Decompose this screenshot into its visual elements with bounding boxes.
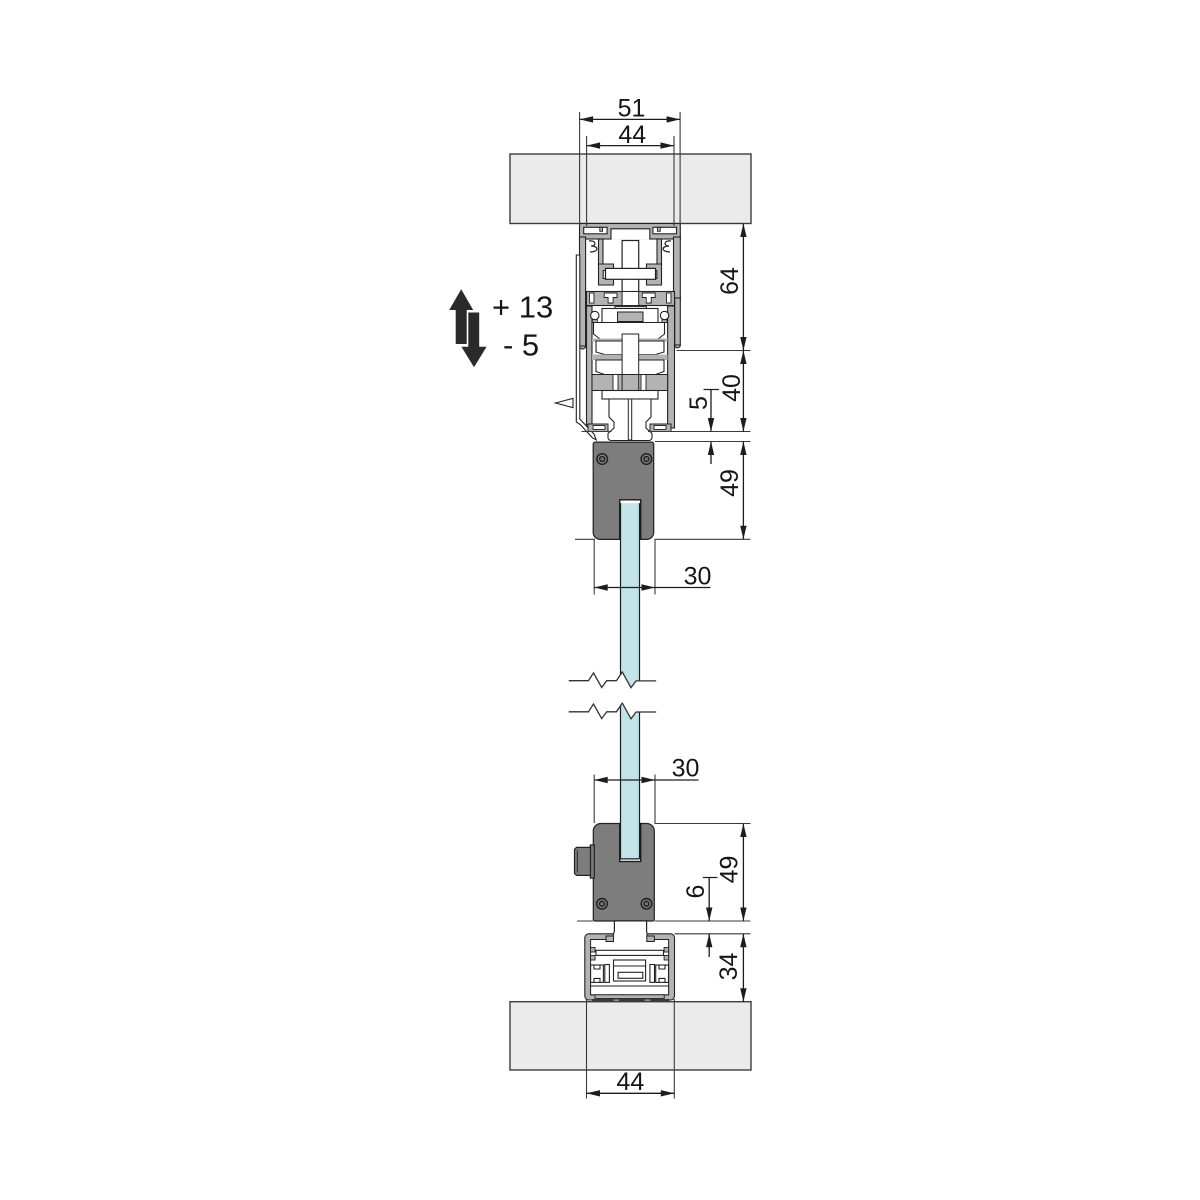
svg-text:30: 30 [672,755,700,783]
svg-text:51: 51 [618,95,646,123]
svg-text:6: 6 [682,885,710,899]
svg-text:+ 13: + 13 [492,290,553,325]
svg-text:49: 49 [716,856,744,884]
svg-text:44: 44 [616,1068,644,1096]
svg-text:40: 40 [718,374,746,402]
svg-text:64: 64 [716,267,744,295]
svg-text:34: 34 [715,953,743,981]
svg-text:- 5: - 5 [503,328,539,363]
svg-text:49: 49 [716,469,744,497]
svg-text:5: 5 [685,396,713,410]
svg-text:30: 30 [684,563,712,591]
svg-text:44: 44 [618,121,646,149]
